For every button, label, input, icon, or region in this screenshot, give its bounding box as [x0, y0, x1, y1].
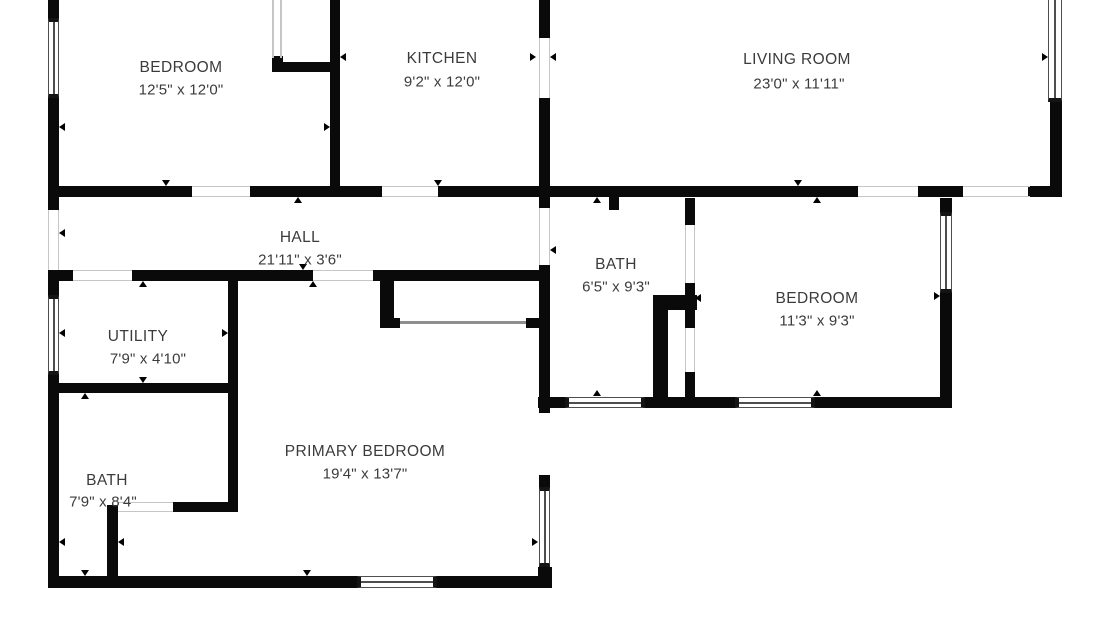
wall	[48, 383, 238, 393]
room-label-utility: UTILITY	[108, 328, 169, 346]
measure-arrow-icon	[81, 570, 89, 576]
door-opening-line	[280, 0, 282, 58]
window	[48, 295, 59, 375]
wall	[940, 198, 952, 212]
wall	[59, 270, 73, 281]
wall	[685, 372, 695, 398]
door-opening-line	[963, 186, 1030, 187]
measure-arrow-icon	[59, 538, 65, 546]
room-dims-bath-bl: 7'9" x 8'4"	[69, 494, 137, 511]
wall	[59, 186, 192, 197]
measure-arrow-icon	[309, 281, 317, 287]
window	[565, 397, 645, 408]
door-opening-line	[192, 196, 250, 197]
measure-arrow-icon	[532, 538, 538, 546]
room-label-primary-bedroom: PRIMARY BEDROOM	[285, 443, 445, 461]
window	[735, 397, 815, 408]
door-opening-line	[382, 196, 438, 197]
measure-arrow-icon	[222, 329, 228, 337]
wall	[250, 186, 382, 197]
room-dims-kitchen: 9'2" x 12'0"	[404, 74, 480, 91]
measure-arrow-icon	[340, 53, 346, 61]
window	[1048, 0, 1062, 102]
wall	[373, 270, 550, 281]
wall	[685, 198, 695, 225]
measure-arrow-icon	[550, 246, 556, 254]
door-opening-line	[549, 208, 550, 265]
measure-arrow-icon	[434, 180, 442, 186]
door-opening-line	[48, 210, 49, 270]
room-label-bedroom-br: BEDROOM	[776, 290, 859, 308]
measure-arrow-icon	[695, 294, 701, 302]
measure-arrow-icon	[813, 197, 821, 203]
room-dims-primary-bedroom: 19'4" x 13'7"	[323, 466, 408, 483]
measure-arrow-icon	[593, 390, 601, 396]
measure-arrow-icon	[794, 180, 802, 186]
door-opening-line	[858, 196, 918, 197]
wall	[272, 62, 340, 72]
wall	[609, 197, 619, 210]
wall	[526, 318, 540, 328]
door-opening-line	[58, 210, 59, 270]
wall	[538, 397, 565, 408]
room-dims-utility: 7'9" x 4'10"	[110, 351, 186, 368]
door-opening-line	[73, 280, 132, 281]
measure-arrow-icon	[550, 53, 556, 61]
door-opening-line	[313, 280, 373, 281]
wall	[173, 502, 238, 512]
door-opening-line	[685, 328, 686, 372]
wall	[645, 397, 735, 408]
door-opening-line	[382, 186, 438, 187]
measure-arrow-icon	[593, 197, 601, 203]
wall	[48, 375, 59, 588]
room-label-living-room: LIVING ROOM	[743, 51, 851, 69]
door-opening-line	[272, 0, 274, 58]
wall	[1050, 102, 1062, 197]
measure-arrow-icon	[303, 570, 311, 576]
room-label-bath-bl: BATH	[86, 472, 128, 490]
room-label-hall: HALL	[280, 229, 320, 247]
measure-arrow-icon	[934, 292, 940, 300]
wall	[107, 505, 118, 583]
measure-arrow-icon	[162, 180, 170, 186]
window	[48, 18, 59, 98]
room-label-bedroom-tl: BEDROOM	[140, 59, 223, 77]
room-dims-bedroom-tl: 12'5" x 12'0"	[139, 82, 224, 99]
wall	[330, 0, 340, 186]
measure-arrow-icon	[324, 123, 330, 131]
wall	[437, 576, 552, 588]
door-opening-line	[549, 38, 550, 98]
wall	[48, 270, 59, 295]
door-opening-line	[694, 225, 695, 283]
floor-plan: BEDROOM 12'5" x 12'0" KITCHEN 9'2" x 12'…	[0, 0, 1110, 623]
wall	[539, 0, 550, 38]
wall	[685, 283, 695, 328]
wall	[918, 186, 963, 197]
door-opening-line	[539, 38, 540, 98]
room-label-kitchen: KITCHEN	[407, 50, 478, 68]
measure-arrow-icon	[139, 281, 147, 287]
door-opening-line	[118, 511, 173, 512]
wall	[48, 98, 59, 210]
measure-arrow-icon	[530, 53, 536, 61]
door-opening-line	[963, 196, 1030, 197]
wall	[815, 397, 952, 408]
door-opening-line	[73, 270, 132, 271]
wall	[653, 295, 668, 398]
window	[539, 487, 550, 567]
wall	[438, 186, 858, 197]
window	[357, 576, 437, 588]
wall	[48, 576, 357, 588]
wall	[940, 293, 952, 408]
room-dims-hall: 21'11" x 3'6"	[258, 252, 342, 269]
measure-arrow-icon	[813, 390, 821, 396]
wall	[539, 265, 550, 413]
door-opening-line	[694, 328, 695, 372]
wall	[539, 98, 550, 208]
closet-door-line	[400, 321, 528, 324]
measure-arrow-icon	[59, 229, 65, 237]
door-opening-line	[539, 208, 540, 265]
measure-arrow-icon	[59, 329, 65, 337]
room-dims-living-room: 23'0" x 11'11"	[753, 76, 844, 93]
measure-arrow-icon	[59, 123, 65, 131]
door-opening-line	[858, 186, 918, 187]
window	[940, 212, 952, 293]
measure-arrow-icon	[294, 197, 302, 203]
room-dims-bath-mid: 6'5" x 9'3"	[582, 279, 650, 296]
wall	[132, 270, 313, 281]
measure-arrow-icon	[81, 393, 89, 399]
room-label-bath-mid: BATH	[595, 256, 637, 274]
measure-arrow-icon	[1042, 53, 1048, 61]
door-opening-line	[192, 186, 250, 187]
measure-arrow-icon	[118, 538, 124, 546]
door-opening-line	[313, 270, 373, 271]
door-opening-line	[685, 225, 686, 283]
wall	[380, 318, 400, 328]
wall	[539, 475, 550, 487]
wall	[48, 0, 59, 18]
measure-arrow-icon	[139, 377, 147, 383]
room-dims-bedroom-br: 11'3" x 9'3"	[779, 313, 854, 330]
